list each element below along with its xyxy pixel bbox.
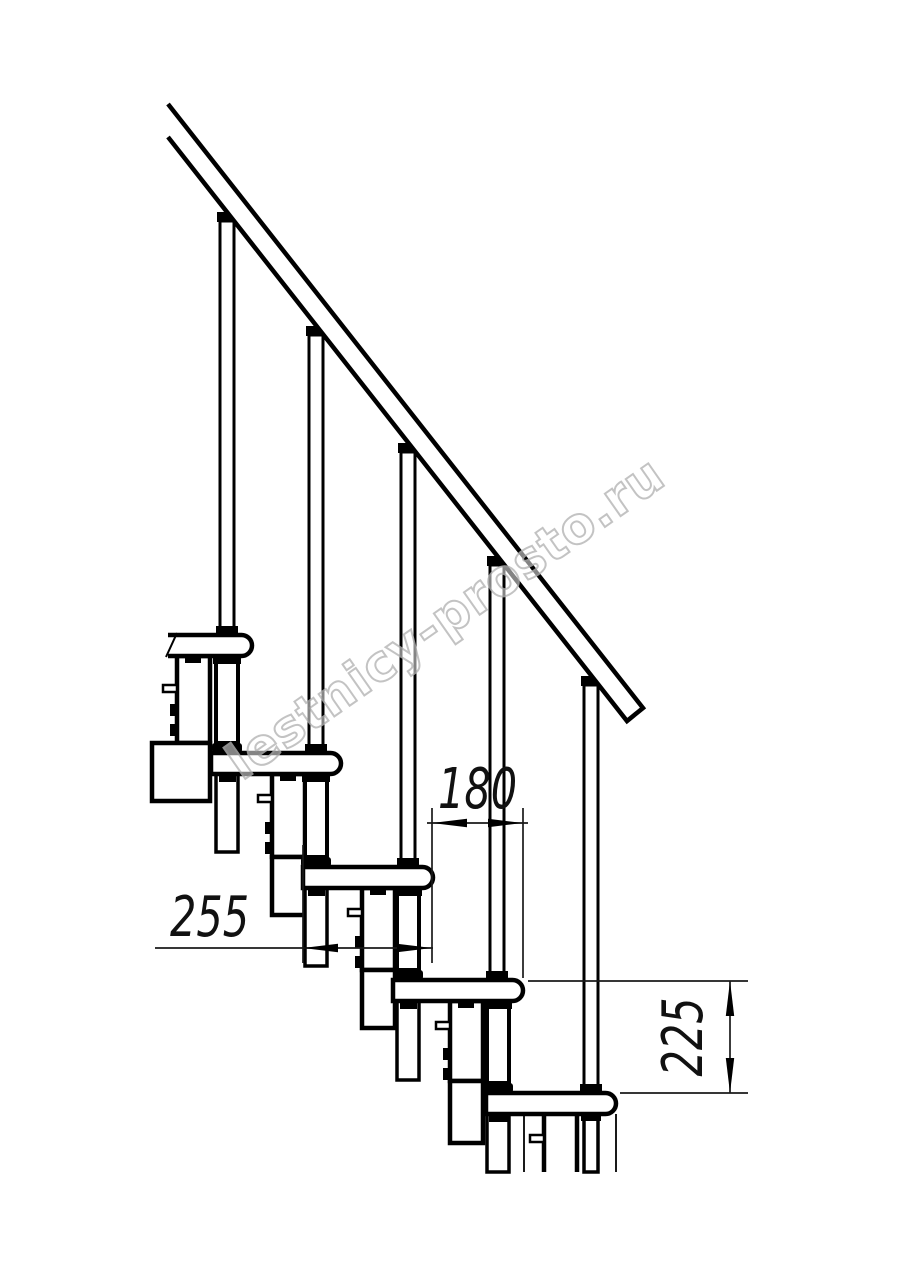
column-lower-box (272, 857, 305, 915)
baluster-5 (580, 676, 602, 1093)
bolt-icon (170, 704, 178, 716)
leg-continuation (216, 774, 238, 852)
column-side-tab (348, 909, 362, 916)
front-leg (393, 888, 423, 980)
column-box (450, 1001, 483, 1081)
step-tread-3 (303, 867, 433, 888)
bolt-icon (355, 956, 363, 968)
column-box (362, 888, 395, 970)
column-lower-box (362, 970, 395, 1028)
leg-continuation (397, 1001, 419, 1080)
column-lower-box (450, 1081, 483, 1143)
column-side-tab (258, 795, 272, 802)
dimension-label-180: 180 (438, 756, 517, 822)
dimension-label-225: 225 (650, 997, 716, 1076)
leg-continuation (305, 888, 327, 966)
baluster-1 (216, 212, 238, 635)
bolt-icon (443, 1048, 451, 1060)
stair-module-5 (486, 1093, 616, 1172)
baluster-bottom-collar (216, 626, 238, 635)
arrowhead-icon (726, 1058, 734, 1093)
front-leg (581, 1114, 601, 1172)
leg-continuation (487, 1114, 509, 1172)
column-side-tab (530, 1135, 544, 1142)
step-tread-1 (168, 635, 252, 656)
dimension-step-rise: 225 (528, 981, 748, 1093)
watermark-text: lestnicy-prosto.ru (215, 445, 675, 791)
column-box (177, 656, 210, 743)
column-side-tab (163, 685, 177, 692)
dimension-step-run: 180 (427, 756, 528, 978)
bolt-icon (355, 936, 363, 948)
step-tread-4 (393, 980, 523, 1001)
column-box (272, 774, 305, 857)
baluster-bottom-collar (580, 1084, 602, 1093)
bolt-icon (265, 822, 273, 834)
dimension-label-255: 255 (170, 884, 249, 950)
bolt-icon (265, 842, 273, 854)
baluster-bottom-collar (397, 858, 419, 867)
technical-drawing: 255 180 225 lestnicy-prosto.ru (0, 0, 914, 1280)
bolt-icon (443, 1068, 451, 1080)
baluster-bottom-collar (486, 971, 508, 980)
arrowhead-icon (726, 981, 734, 1016)
column-lower-box (152, 743, 210, 801)
front-leg (301, 774, 331, 867)
step-tread-5 (486, 1093, 616, 1114)
front-leg (483, 1001, 513, 1093)
column-side-tab (436, 1022, 450, 1029)
bolt-icon (170, 724, 178, 736)
column-box (544, 1114, 577, 1172)
